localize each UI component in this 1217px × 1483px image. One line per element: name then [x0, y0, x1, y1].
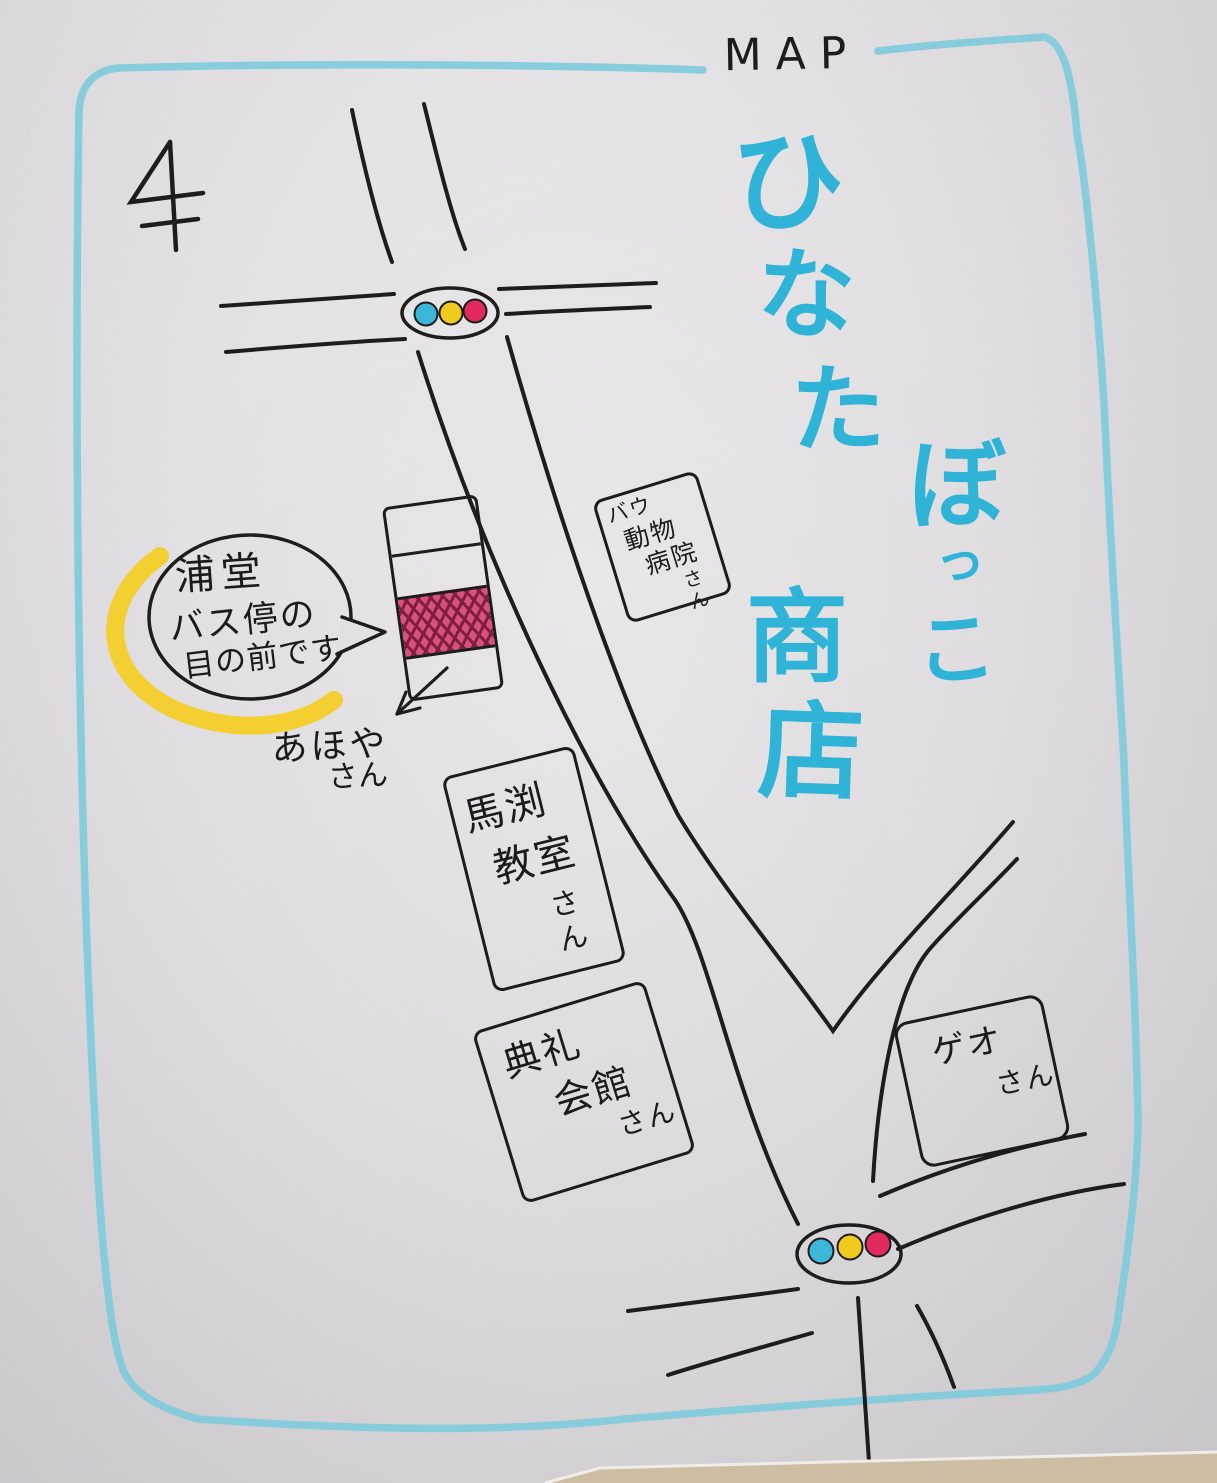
- title-char-ta: た: [790, 364, 885, 459]
- title-char-ko: こ: [913, 607, 998, 692]
- title-char-shou: 商: [746, 588, 848, 690]
- traffic-light-bottom: [797, 1225, 901, 1283]
- signal-red-dot: [464, 300, 487, 323]
- building-label: さん: [993, 1057, 1059, 1102]
- building-label: さん: [547, 877, 620, 957]
- bubble-text-line1: 浦堂: [174, 551, 269, 597]
- map-drawing: [0, 0, 1217, 1483]
- title-char-small-tsu: っ: [935, 536, 985, 586]
- traffic-light-top: [402, 288, 498, 338]
- building-geo: ゲオ さん: [892, 993, 1071, 1169]
- map-corner-label: MAP: [723, 32, 860, 78]
- title-char-na: な: [755, 245, 856, 346]
- signal-blue-dot: [809, 1239, 834, 1264]
- title-char-bo: ぼ: [908, 437, 1006, 535]
- shop-note-line2: さん: [327, 760, 388, 793]
- north-mark-icon: [131, 142, 203, 250]
- signal-red-dot: [866, 1232, 891, 1257]
- title-char-hi: ひ: [729, 124, 847, 242]
- signal-blue-dot: [415, 303, 438, 326]
- hand-drawn-map-photo: MAP ひ な た ぼ っ こ 商 店 浦堂 バス停の 目の前です あほや さん…: [0, 0, 1217, 1483]
- signal-yellow-dot: [838, 1235, 863, 1260]
- title-char-ten: 店: [756, 698, 866, 808]
- signal-yellow-dot: [440, 302, 463, 325]
